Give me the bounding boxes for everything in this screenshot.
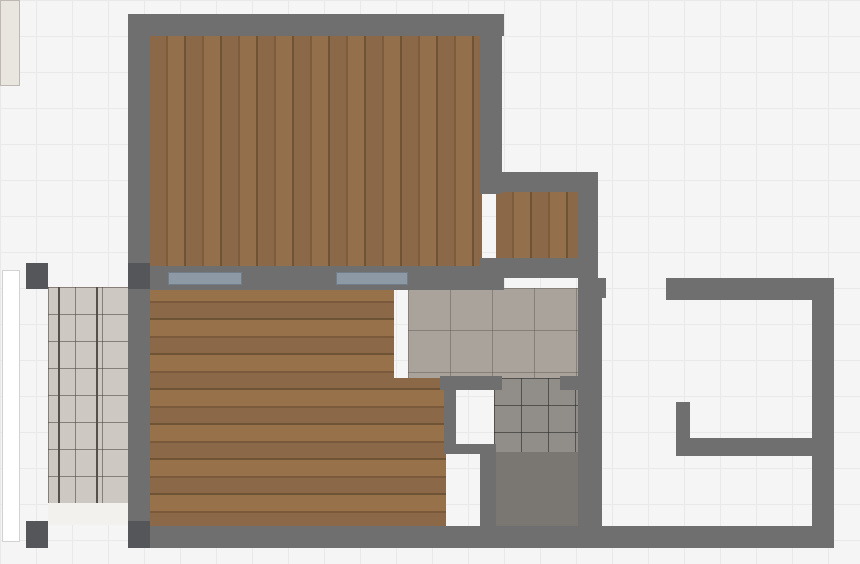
wall-second-bedroom-right xyxy=(480,14,502,194)
wall-vanity-left xyxy=(444,384,456,450)
room-floor-bathroom-shower[interactable] xyxy=(494,452,578,528)
balcony-corner-post xyxy=(26,263,48,289)
balcony-corner-post xyxy=(128,521,150,548)
wall-top xyxy=(128,14,504,36)
room-floor-master-bedroom[interactable] xyxy=(150,288,394,528)
wall-kitchen-bottom xyxy=(676,438,816,456)
wall-bottom xyxy=(128,526,834,548)
room-floor-second-bedroom[interactable] xyxy=(150,36,482,270)
room-floor-living-dining[interactable] xyxy=(496,192,578,258)
balcony-corner-post xyxy=(128,263,150,289)
divider-transom-2 xyxy=(336,272,408,285)
room-floor-corridor-upper[interactable] xyxy=(408,288,578,378)
wall-left-upper xyxy=(128,14,150,270)
balcony-rail-line xyxy=(96,287,98,503)
wall-right-outer xyxy=(812,278,834,548)
wall-entry-left xyxy=(578,278,606,298)
room-floor-master-bedroom-ext[interactable] xyxy=(394,378,446,528)
window-second-bedroom[interactable] xyxy=(0,86,24,196)
kitchen-tile-area xyxy=(690,298,772,390)
wall-bathroom-lower-left xyxy=(480,452,496,528)
hallway-cabinet[interactable] xyxy=(0,0,20,86)
wall-top-right xyxy=(666,278,834,300)
door-bedroom-to-corridor[interactable] xyxy=(0,558,64,564)
wall-bathroom-right xyxy=(578,290,602,530)
balcony-rail-line xyxy=(58,287,60,503)
floor-plan-canvas: 红牛装饰 HONG NIU DECORATION 次卧14.16m² 客餐厅0.… xyxy=(0,0,860,564)
window-master-balcony-1[interactable] xyxy=(0,196,22,250)
wall-balcony-divider xyxy=(128,266,150,548)
balcony-outer-ledge xyxy=(2,270,20,542)
balcony-corner-post xyxy=(26,521,48,548)
wall-corridor-bathroom-2 xyxy=(560,376,578,390)
room-floor-balcony[interactable] xyxy=(48,287,128,503)
balcony-lower-deck xyxy=(48,503,128,525)
divider-transom-1 xyxy=(168,272,242,285)
